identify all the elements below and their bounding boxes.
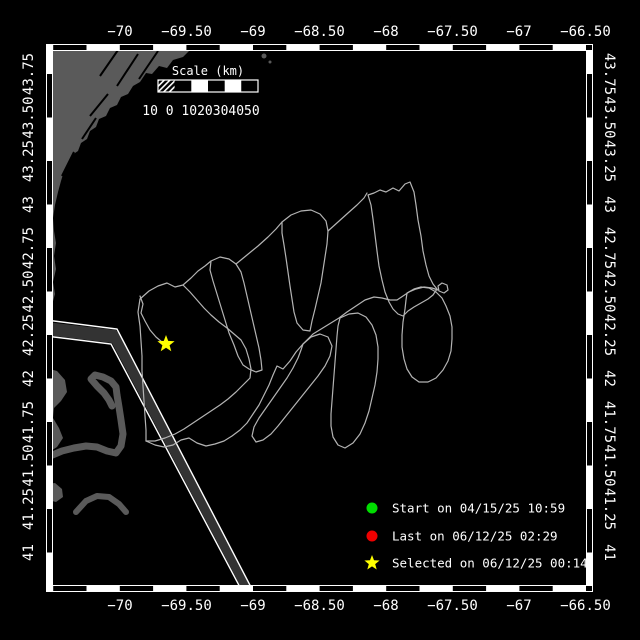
lat-tick-label-right: 43 [601, 196, 617, 213]
lat-tick-label-right: 41.75 [601, 401, 617, 443]
frame-band-segment [586, 45, 593, 50]
lon-tick-label-bottom: −67 [506, 598, 531, 614]
frame-band-segment [587, 74, 592, 118]
legend-start-label: Start on 04/15/25 10:59 [392, 501, 565, 516]
lat-tick-label-right: 43.50 [601, 96, 617, 138]
lat-tick-label-left: 41.25 [21, 488, 37, 530]
lat-tick-label-right: 43.75 [601, 53, 617, 95]
frame-band-segment [587, 422, 592, 466]
scalebar-title: Scale (km) [172, 64, 244, 78]
scalebar-cell [175, 80, 192, 92]
lon-tick-label-bottom: −66.50 [560, 598, 611, 614]
legend: Start on 04/15/25 10:59 Last on 06/12/25… [364, 501, 587, 571]
lat-tick-label-right: 42 [601, 370, 617, 387]
lat-tick-label-left: 42 [21, 370, 37, 387]
lat-tick-label-right: 41.50 [601, 444, 617, 486]
frame-band-segment [47, 248, 52, 292]
lat-tick-label-left: 42.50 [21, 270, 37, 312]
lon-tick-label-top: −66.50 [560, 24, 611, 40]
frame-band-segment [519, 45, 552, 50]
small-island-dot [262, 54, 267, 59]
frame-band-segment [587, 161, 592, 205]
legend-start-marker [367, 503, 378, 514]
lat-tick-label-right: 41.25 [601, 488, 617, 530]
scalebar-cell-hatch [158, 80, 175, 92]
frame-band-segment [53, 586, 86, 591]
lat-tick-label-left: 42.25 [21, 314, 37, 356]
lat-tick-label-left: 43.75 [21, 53, 37, 95]
frame-band-segment [587, 248, 592, 292]
scalebar-cell [225, 80, 242, 92]
frame-band-segment [120, 586, 153, 591]
frame-band-segment [587, 509, 592, 553]
frame-band-segment [47, 422, 52, 466]
lat-tick-label-right: 42.25 [601, 314, 617, 356]
lat-tick-label-left: 43 [21, 196, 37, 213]
frame-band-segment [47, 74, 52, 118]
map-window: Scale (km) 10 0 1020304050 Start on 04/1… [0, 0, 640, 640]
lon-tick-label-top: −69 [240, 24, 265, 40]
lat-tick-label-right: 41 [601, 544, 617, 561]
scalebar-numbers: 10 0 1020304050 [142, 104, 259, 119]
lon-tick-label-top: −68 [373, 24, 398, 40]
frame-band-segment [47, 509, 52, 553]
lat-tick-label-left: 43.25 [21, 140, 37, 182]
frame-band-segment [586, 586, 593, 591]
frame-band-segment [587, 335, 592, 379]
lon-tick-label-bottom: −69 [240, 598, 265, 614]
lon-tick-label-bottom: −69.50 [161, 598, 212, 614]
lon-tick-label-top: −67 [506, 24, 531, 40]
frame-band-segment [47, 161, 52, 205]
map-canvas[interactable]: Scale (km) 10 0 1020304050 Start on 04/1… [0, 0, 640, 640]
small-island-dot [269, 61, 272, 64]
lon-tick-label-bottom: −70 [107, 598, 132, 614]
lon-tick-label-top: −70 [107, 24, 132, 40]
lat-tick-label-right: 42.75 [601, 227, 617, 269]
lon-tick-label-top: −69.50 [161, 24, 212, 40]
frame-band-segment [47, 335, 52, 379]
lon-tick-label-top: −68.50 [294, 24, 345, 40]
lat-tick-label-left: 42.75 [21, 227, 37, 269]
lon-tick-label-bottom: −68 [373, 598, 398, 614]
lat-tick-label-left: 41.75 [21, 401, 37, 443]
frame-band-segment [453, 45, 486, 50]
frame-band-segment [120, 45, 153, 50]
lat-tick-label-left: 41 [21, 544, 37, 561]
lat-tick-label-left: 41.50 [21, 444, 37, 486]
frame-band-segment [320, 45, 353, 50]
lat-tick-label-left: 43.50 [21, 96, 37, 138]
legend-last-marker [367, 531, 378, 542]
legend-last-label: Last on 06/12/25 02:29 [392, 529, 558, 544]
frame-band-segment [320, 586, 353, 591]
frame-band-segment [186, 586, 219, 591]
lat-tick-label-right: 43.25 [601, 140, 617, 182]
lat-tick-label-right: 42.50 [601, 270, 617, 312]
frame-band-segment [386, 586, 419, 591]
lon-tick-label-top: −67.50 [427, 24, 478, 40]
frame-band-segment [519, 586, 552, 591]
frame-band-segment [186, 45, 219, 50]
frame-band-segment [53, 45, 86, 50]
frame-band-segment [253, 45, 286, 50]
lon-tick-label-bottom: −68.50 [294, 598, 345, 614]
frame-band-segment [386, 45, 419, 50]
lon-tick-label-bottom: −67.50 [427, 598, 478, 614]
scalebar-cell [191, 80, 208, 92]
frame-band-segment [453, 586, 486, 591]
scalebar-cell [241, 80, 258, 92]
legend-selected-label: Selected on 06/12/25 00:14 [392, 556, 588, 571]
scalebar-cell [208, 80, 225, 92]
frame-band-segment [253, 586, 286, 591]
